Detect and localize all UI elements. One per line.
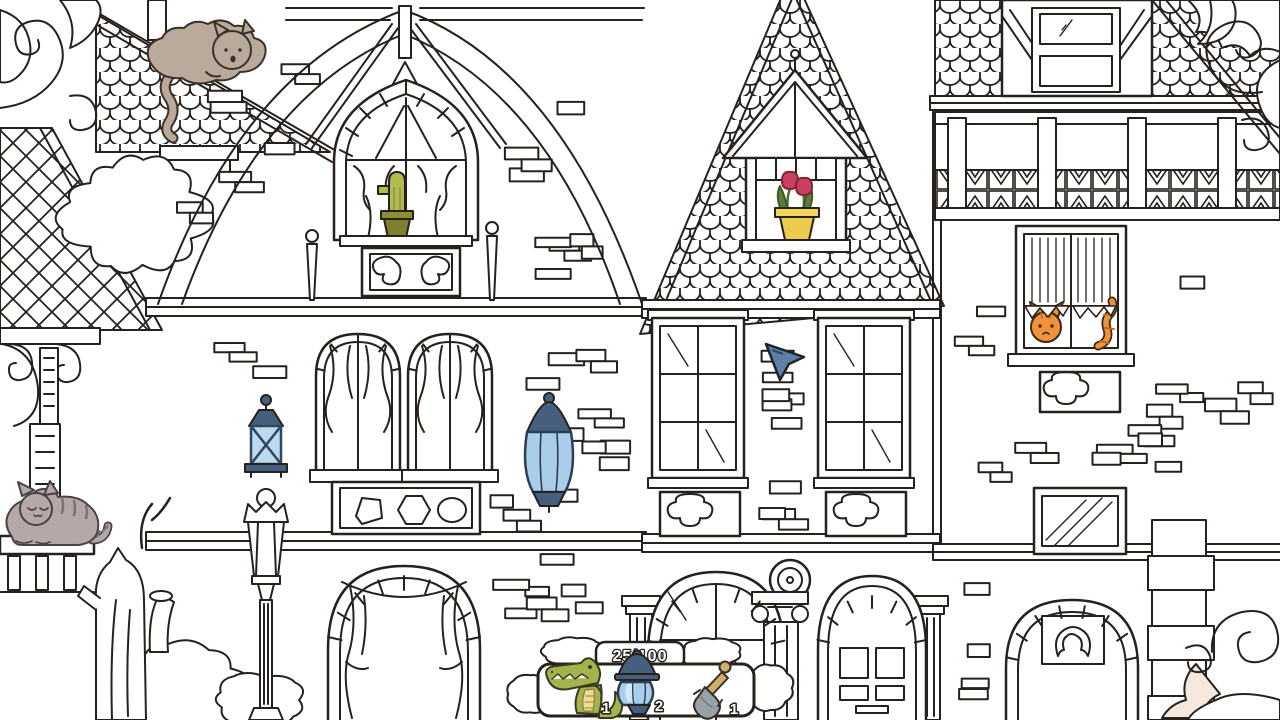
- right-arched-door: [1006, 600, 1138, 720]
- shaded-window: [1034, 488, 1126, 554]
- relief-panel: [826, 492, 906, 536]
- scroll-ornament-top-left: [0, 0, 101, 130]
- left-tower: [0, 344, 94, 592]
- balcony-relief-panel: [332, 482, 480, 534]
- tabby-cat-on-ledge[interactable]: [6, 481, 108, 545]
- window-with-orange-cat: [1008, 226, 1134, 366]
- center-window: [814, 310, 914, 488]
- center-window: [648, 310, 748, 488]
- gable-gothic-window: [334, 80, 478, 246]
- roof-dormer-window: [1002, 0, 1152, 96]
- decorative-frieze: [935, 112, 1280, 220]
- lantern-count: 2: [655, 698, 663, 715]
- second-floor-window: [402, 334, 498, 482]
- shovel-count: 1: [730, 701, 738, 718]
- scene-canvas: 25/100 1 2 1: [0, 0, 1280, 720]
- wall-lantern-left[interactable]: [245, 395, 287, 477]
- second-floor-window: [310, 334, 406, 482]
- relief-panel: [660, 492, 740, 536]
- crocodile-count: 1: [602, 700, 610, 717]
- relief-panel: [1040, 372, 1120, 412]
- bat-relief-panel: [362, 248, 460, 296]
- game-stage: 25/100 1 2 1: [0, 0, 1280, 720]
